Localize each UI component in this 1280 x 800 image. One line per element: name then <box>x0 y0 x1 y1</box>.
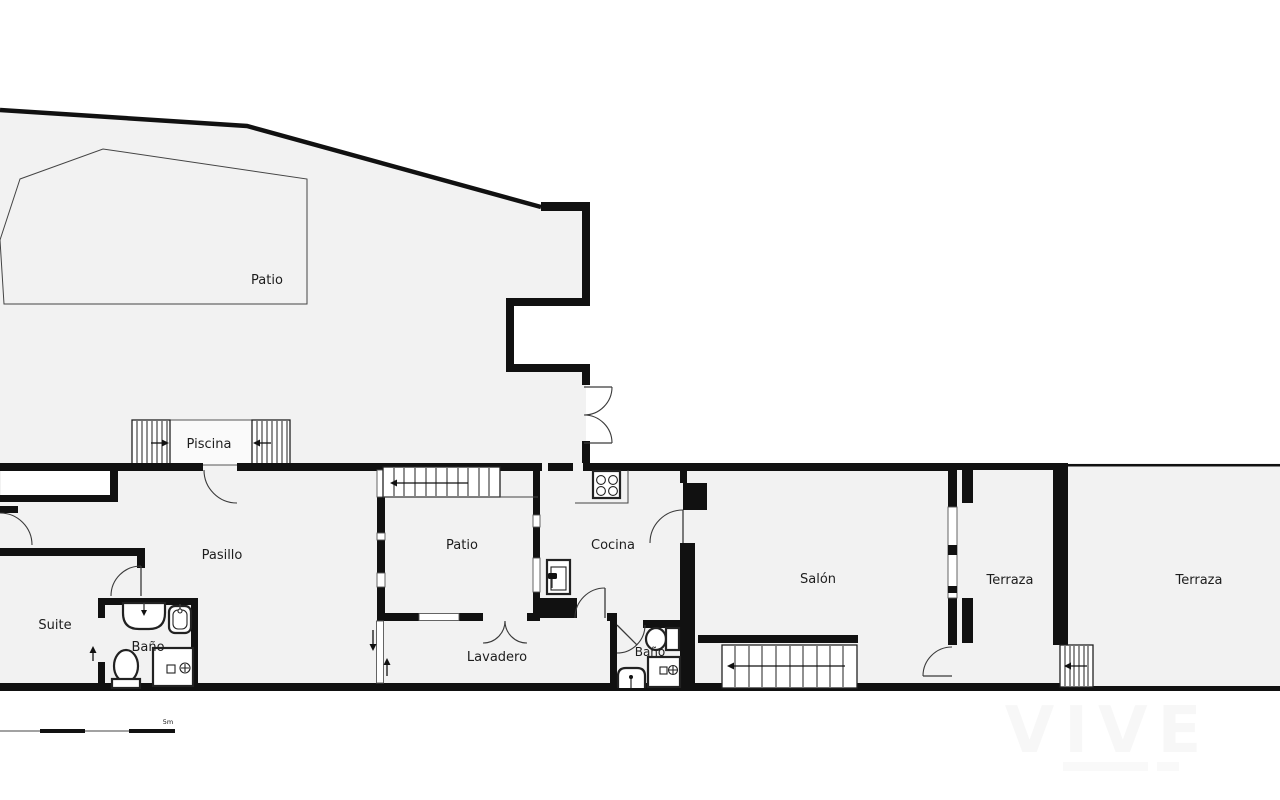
label-patio-top: Patio <box>251 273 283 288</box>
label-salon: Salón <box>800 572 836 587</box>
sink-icon <box>618 668 645 688</box>
closet <box>1 471 110 495</box>
watermark: VIVE <box>1005 694 1212 771</box>
sink-icon <box>547 560 570 594</box>
label-patio-inner: Patio <box>446 538 478 553</box>
watermark-text: VIVE <box>1005 694 1212 768</box>
toilet-icon <box>112 650 140 688</box>
label-terraza-1: Terraza <box>986 573 1034 588</box>
sink-icon <box>123 603 165 629</box>
label-suite: Suite <box>38 618 71 633</box>
label-bano-2: Baño <box>635 645 666 659</box>
label-lavadero: Lavadero <box>467 650 527 665</box>
label-pasillo: Pasillo <box>202 548 243 563</box>
scale-label: 5m <box>163 718 173 726</box>
label-cocina: Cocina <box>591 538 635 553</box>
french-doors <box>584 387 612 443</box>
sink-icon <box>169 604 191 633</box>
exterior-patio-area <box>0 110 586 463</box>
shower-icon <box>648 657 680 687</box>
label-piscina: Piscina <box>187 437 232 452</box>
label-terraza-2: Terraza <box>1175 573 1223 588</box>
floor-plan-svg: Patio Piscina Pasillo Patio Cocina Salón… <box>0 0 1280 800</box>
label-bano-1: Baño <box>131 640 164 655</box>
scale-bar: 5m <box>0 718 175 733</box>
salon-stairs <box>722 645 857 688</box>
pasillo-lavadero-opening <box>377 621 384 683</box>
floor-plan-page: Patio Piscina Pasillo Patio Cocina Salón… <box>0 0 1280 800</box>
terraza-stairs <box>1060 645 1093 687</box>
